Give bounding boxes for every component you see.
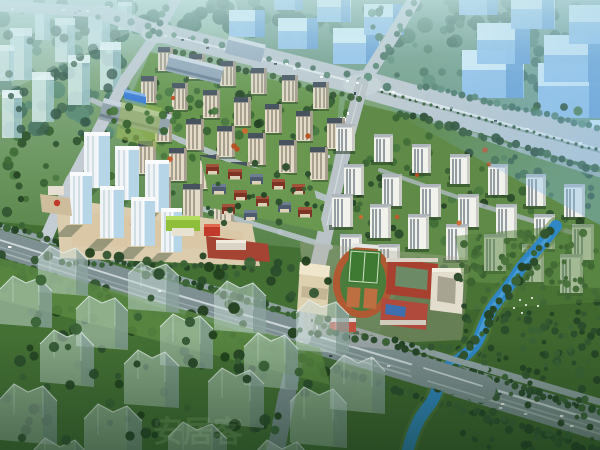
svg-text:安居客: 安居客 xyxy=(153,415,243,449)
